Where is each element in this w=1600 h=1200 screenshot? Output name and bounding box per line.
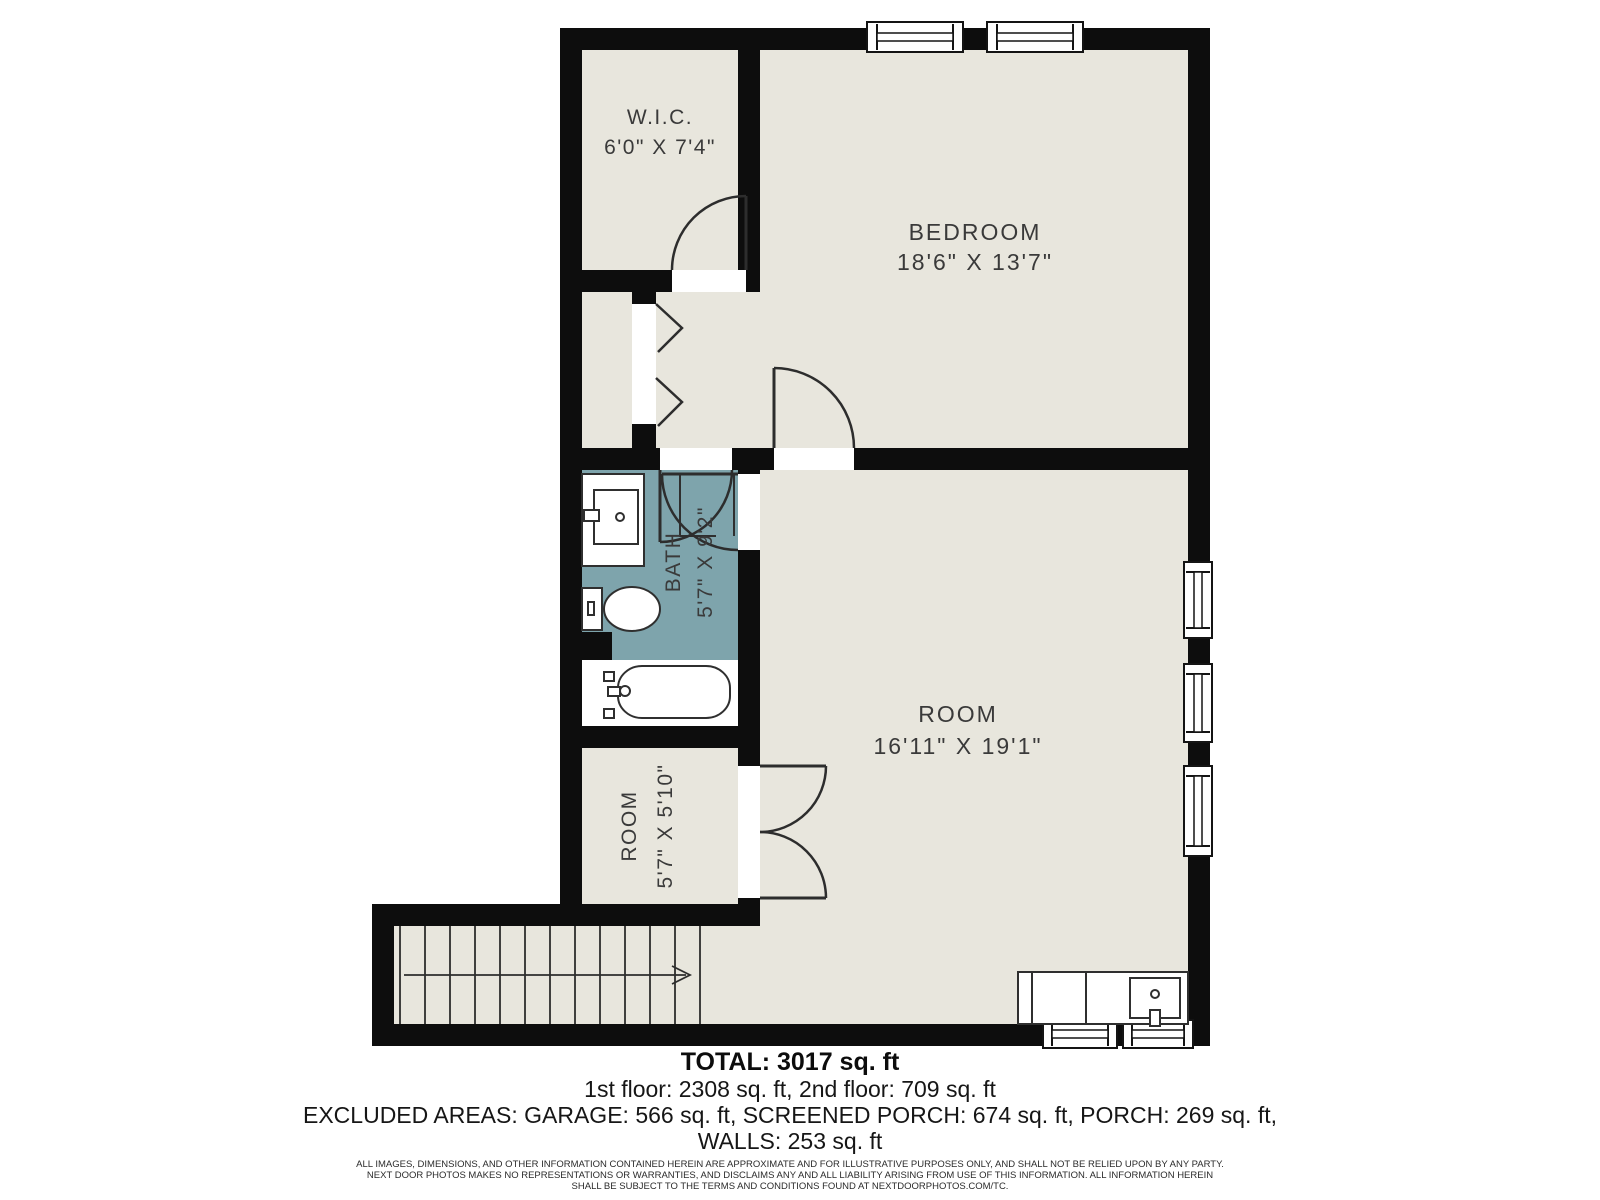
floor-areas xyxy=(394,50,1188,1024)
window xyxy=(987,22,1083,52)
toilet xyxy=(582,587,660,631)
bathtub xyxy=(604,666,730,718)
bedroom-label: BEDROOM xyxy=(909,219,1042,245)
wall-right xyxy=(1188,28,1210,1046)
small-room-dims: 5'7" X 5'10" xyxy=(654,764,677,889)
window xyxy=(1184,766,1212,856)
wall-stair-top xyxy=(372,904,760,926)
total-area-text: TOTAL: 3017 sq. ft xyxy=(681,1048,900,1076)
area-summary: TOTAL: 3017 sq. ft 1st floor: 2308 sq. f… xyxy=(303,1048,1277,1154)
disclaimer-line-2: NEXT DOOR PHOTOS MAKES NO REPRESENTATION… xyxy=(367,1170,1213,1181)
wall-wic-right xyxy=(738,28,760,292)
excluded-areas-text: EXCLUDED AREAS: GARAGE: 566 sq. ft, SCRE… xyxy=(303,1102,1277,1128)
disclaimer-line-1: ALL IMAGES, DIMENSIONS, AND OTHER INFORM… xyxy=(356,1159,1224,1170)
disclaimer: ALL IMAGES, DIMENSIONS, AND OTHER INFORM… xyxy=(356,1159,1224,1192)
window xyxy=(1184,664,1212,742)
wall-tub-notch xyxy=(582,632,612,660)
bath-top-door-threshold xyxy=(660,448,732,470)
wic-dims: 6'0" X 7'4" xyxy=(604,136,716,159)
bath-label: BATH xyxy=(662,532,685,592)
wall-below-alcove xyxy=(560,726,760,748)
wic-label: W.I.C. xyxy=(627,106,693,129)
main-room-dims: 16'11" X 19'1" xyxy=(873,733,1042,759)
floor-areas-text: 1st floor: 2308 sq. ft, 2nd floor: 709 s… xyxy=(584,1076,996,1102)
kitchen-counter xyxy=(1018,972,1188,1026)
window xyxy=(1184,562,1212,638)
wall-closet-stub-bottom xyxy=(632,424,656,448)
window xyxy=(867,22,963,52)
wall-closet-stub-top xyxy=(632,292,656,304)
tub-faucet-knob xyxy=(620,686,630,696)
closet-floor xyxy=(582,292,632,448)
wic-door-threshold xyxy=(672,270,746,292)
bathroom-vanity xyxy=(582,474,644,566)
closet-opening-threshold xyxy=(632,304,656,424)
bedroom-floor-extension xyxy=(656,292,760,448)
double-door-threshold xyxy=(738,766,760,898)
small-room-label: ROOM xyxy=(618,790,641,861)
bath-side-door-threshold xyxy=(738,474,760,550)
walls-area-text: WALLS: 253 sq. ft xyxy=(698,1128,883,1154)
bath-dims: 5'7" X 9'2" xyxy=(694,506,717,618)
wic-floor xyxy=(582,50,738,270)
bedroom-dims: 18'6" X 13'7" xyxy=(897,249,1053,275)
bedroom-door-threshold xyxy=(774,448,854,470)
main-room-label: ROOM xyxy=(918,701,998,727)
disclaimer-line-3: SHALL BE SUBJECT TO THE TERMS AND CONDIT… xyxy=(572,1181,1009,1192)
wall-left xyxy=(560,28,582,926)
floor-plan-diagram: W.I.C. 6'0" X 7'4" BEDROOM 18'6" X 13'7"… xyxy=(0,0,1600,1200)
